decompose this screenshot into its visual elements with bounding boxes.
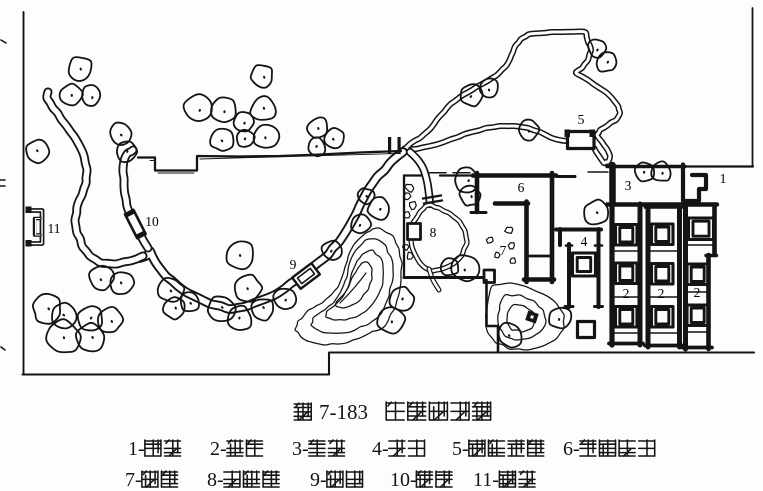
svg-text:9-: 9- [310, 469, 327, 491]
svg-text:2-: 2- [210, 438, 227, 460]
svg-text:3-: 3- [292, 438, 309, 460]
svg-text:7-183: 7-183 [319, 400, 368, 424]
svg-text:6-: 6- [563, 438, 580, 460]
svg-text:2: 2 [694, 285, 701, 300]
svg-text:1: 1 [720, 171, 727, 186]
svg-text:8-: 8- [207, 469, 224, 491]
svg-text:5-: 5- [452, 438, 469, 460]
svg-text:11: 11 [48, 221, 61, 236]
svg-text:10-: 10- [390, 469, 417, 491]
svg-text:10: 10 [145, 214, 159, 229]
svg-text:9: 9 [290, 257, 297, 272]
svg-text:4: 4 [581, 234, 588, 249]
svg-text:7-: 7- [125, 469, 142, 491]
svg-text:6: 6 [518, 180, 525, 195]
svg-text:5: 5 [578, 112, 585, 127]
svg-text:3: 3 [625, 178, 632, 193]
svg-text:2: 2 [623, 286, 630, 301]
svg-text:2: 2 [658, 286, 665, 301]
svg-text:1-: 1- [128, 438, 145, 460]
svg-text:4-: 4- [372, 438, 389, 460]
svg-text:8: 8 [430, 225, 437, 240]
svg-text:11-: 11- [473, 469, 499, 491]
svg-text:7: 7 [500, 243, 507, 258]
